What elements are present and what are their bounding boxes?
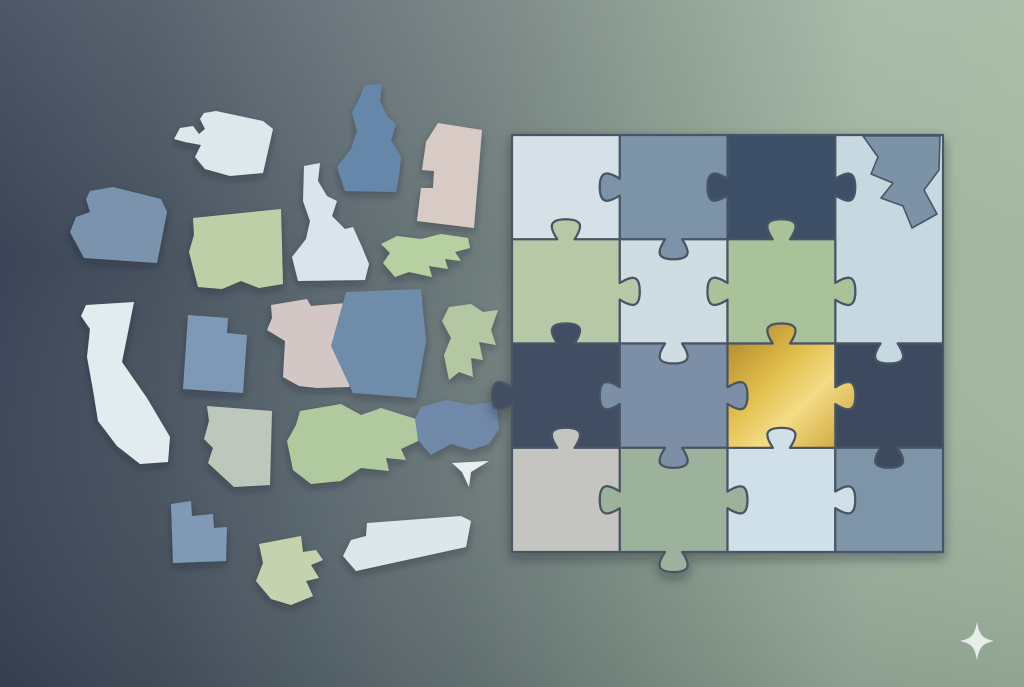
states-puzzle-illustration — [0, 0, 1024, 687]
jigsaw-puzzle-group — [492, 135, 943, 572]
montana-state — [189, 209, 283, 289]
illustration-svg — [0, 0, 1024, 687]
